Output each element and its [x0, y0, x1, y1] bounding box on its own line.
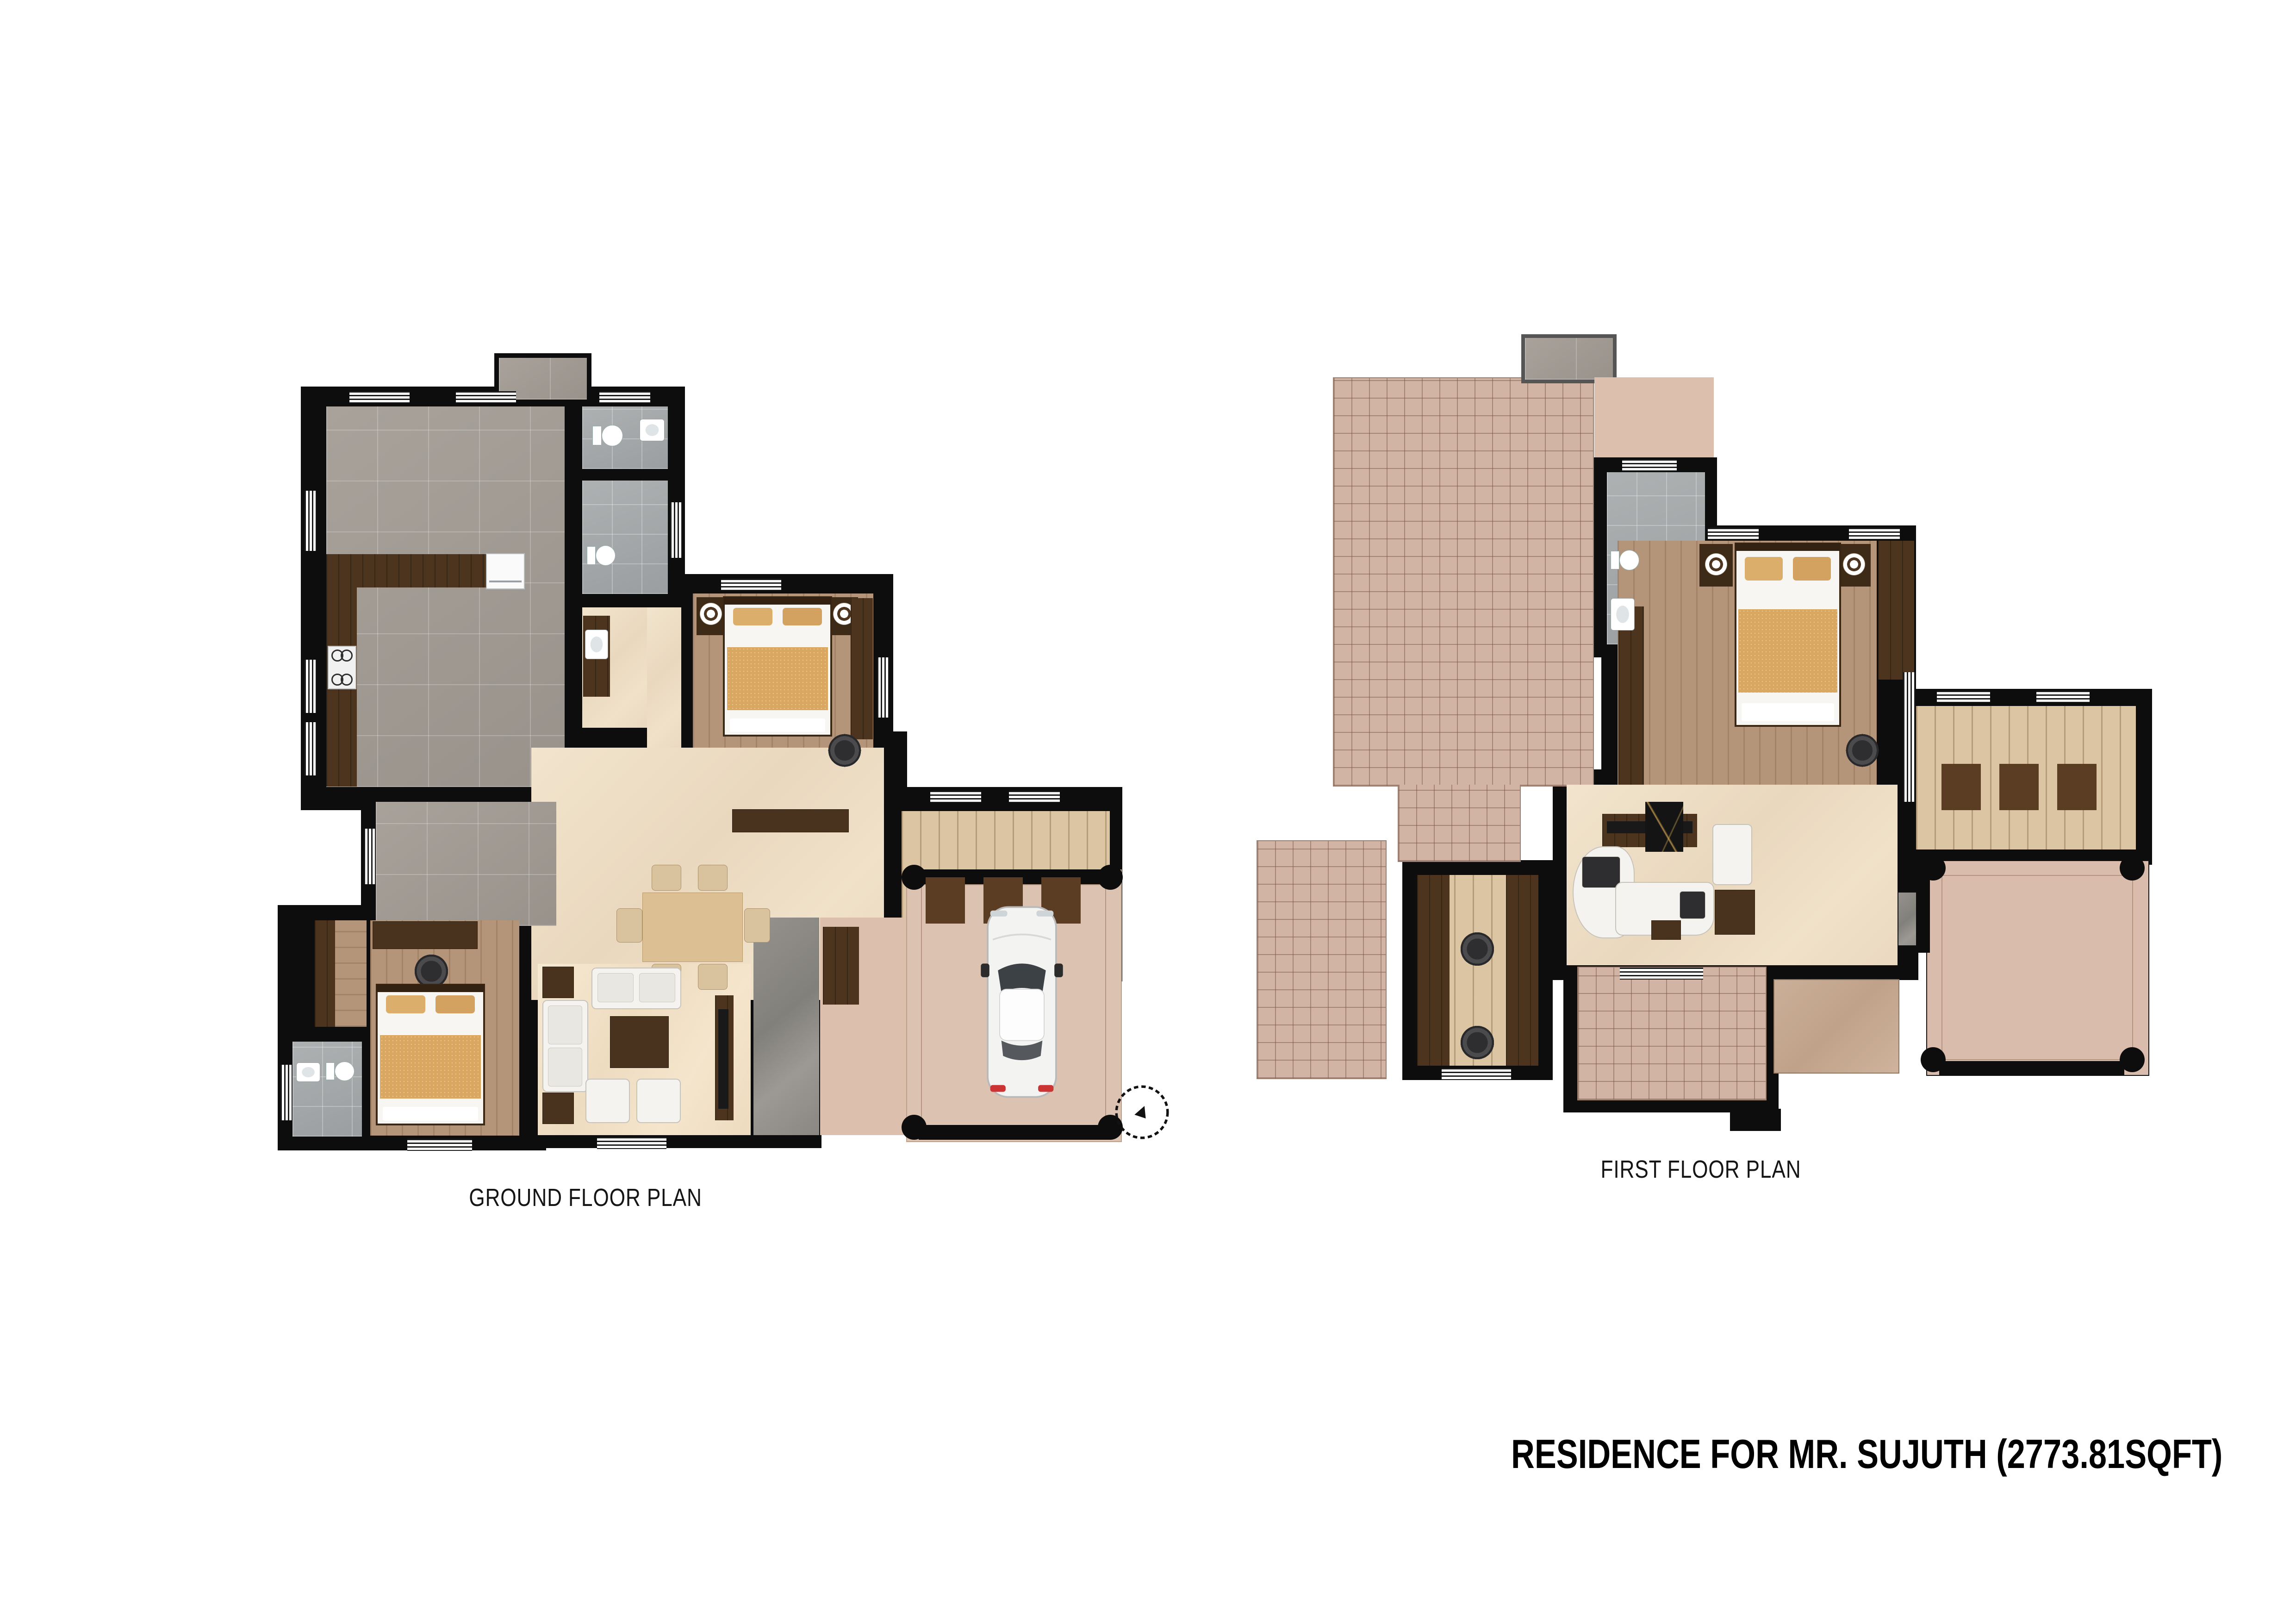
gf-store-floor [376, 802, 556, 926]
first-floor-label: FIRST FLOOR PLAN [1587, 1155, 1815, 1184]
ff-office-chair-2-icon [1459, 1024, 1496, 1061]
ff-window-bedroom-right [1903, 672, 1915, 802]
gf-living-side-table-top [542, 967, 574, 998]
ff-terrace-column-tr [2120, 856, 2145, 881]
ff-tv-marble-panel [1645, 802, 1683, 852]
floor-plan-sheet: GROUND FLOOR PLAN FIRST FLOOR PLAN RESID… [0, 0, 2296, 1624]
gf-sofa-3seat-icon [591, 968, 681, 1009]
gf-dining-chair-6 [744, 908, 770, 943]
gf-kitchen-work-floor [326, 406, 565, 787]
gf-bedroom1-wardrobe-icon [851, 598, 873, 739]
gf-entry-path [753, 918, 819, 1135]
gf-bedroom1-lamp-left-icon [700, 603, 722, 625]
gf-porch-beam-bottom [919, 1125, 1111, 1140]
gf-entry-bench [823, 927, 859, 1005]
gf-bath2-toilet-icon [326, 1060, 355, 1081]
ff-bedroom-bed-icon [1735, 543, 1841, 727]
ff-terrace-column-br [2120, 1047, 2145, 1072]
gf-window-top-1 [349, 391, 410, 403]
ff-terrace-step [1730, 1109, 1781, 1131]
gf-shower-floor [582, 481, 668, 594]
gf-window-bedroom1-top [721, 579, 781, 591]
ff-terrace-column-bl [1921, 1047, 1946, 1072]
gf-corridor-floor [647, 607, 681, 751]
ff-lounge-chair-icon [1712, 824, 1752, 885]
ff-bedroom-lamp-left-icon [1705, 553, 1727, 575]
ff-office-chair-1-icon [1459, 931, 1496, 968]
gf-dining-chair-4 [698, 964, 728, 990]
gf-window-bath1 [599, 391, 650, 403]
gf-dining-chair-2 [698, 865, 728, 891]
gf-tree-icon [1111, 1081, 1173, 1143]
ff-window-stair-2 [2036, 691, 2090, 703]
ff-window-office-bottom [1442, 1068, 1511, 1080]
gf-window-bedroom1-right [877, 657, 889, 718]
gf-window-top-2 [456, 391, 516, 403]
gf-fridge-icon [486, 553, 525, 589]
gf-bath2-sink-icon [296, 1062, 320, 1082]
ff-stair-landing-sq2 [1999, 764, 2039, 810]
ff-bedroom-lamp-right-icon [1843, 553, 1865, 575]
gf-stair-landing-sq1 [926, 877, 965, 924]
gf-dining-table-icon [642, 893, 743, 962]
gf-car-icon [977, 904, 1066, 1100]
gf-vanity-sink-icon [585, 630, 608, 659]
gf-window-bath2-left [280, 1065, 292, 1120]
ff-terrace-bottom-floor [1577, 967, 1767, 1100]
gf-dining-chair-5 [616, 908, 642, 943]
gf-bath1-toilet-icon [592, 424, 623, 447]
ff-roof-main [1333, 377, 1594, 787]
gf-window-bathright [670, 502, 682, 558]
ff-window-stair-1 [1937, 691, 1990, 703]
gf-bedroom1-bed-icon [723, 596, 832, 737]
ff-office-desk-right [1506, 875, 1538, 1066]
ff-hall-coffee-table [1651, 920, 1681, 940]
ff-flat-roof [1594, 377, 1714, 457]
gf-porch-column-tl [902, 865, 927, 890]
gf-window-store-left [364, 829, 376, 884]
gf-bath1-sink-icon [640, 419, 665, 441]
gf-hall-console [732, 809, 849, 832]
gf-window-stair-1 [930, 791, 981, 803]
ff-roof-notch [1398, 785, 1521, 862]
gf-coffee-table-icon [610, 1016, 669, 1068]
gf-window-left-2 [305, 660, 317, 713]
ff-bath-toilet-icon [1611, 549, 1639, 571]
ff-hall-side-table [1715, 890, 1755, 935]
ff-window-hall-bottom [1620, 968, 1703, 980]
ff-window-bedroom-top-2 [1849, 528, 1900, 540]
ff-office-desk-left [1417, 875, 1450, 1066]
gf-tv-icon [718, 1009, 728, 1109]
gf-living-side-table-bottom [542, 1093, 574, 1124]
gf-bedroom2-bed-icon [376, 984, 485, 1125]
gf-sofa-L-icon [542, 1000, 588, 1092]
ff-open-terrace-innerline [1941, 875, 2133, 1060]
gf-stove-icon [328, 646, 356, 689]
ff-terrace-beam-bottom [1939, 1061, 2124, 1075]
gf-porch-column-tr [1098, 865, 1123, 890]
ff-stair-landing-sq3 [2057, 764, 2097, 810]
ff-utility-protrusion [1521, 334, 1617, 383]
ff-corridor-wardrobe-icon [1618, 606, 1644, 814]
gf-bedroom2-desk [373, 921, 478, 949]
ff-window-bath-top [1622, 459, 1677, 471]
gf-armchair-2-icon [636, 1079, 681, 1123]
sheet-title: RESIDENCE FOR MR. SUJUTH (2773.81SQFT) [1511, 1430, 2066, 1478]
ground-floor-label: GROUND FLOOR PLAN [464, 1183, 707, 1212]
gf-kitchen-counter-top [326, 554, 486, 587]
ff-suede-terrace [1773, 979, 1899, 1074]
gf-shower-toilet-icon [587, 544, 616, 566]
gf-window-stair-2 [1009, 791, 1060, 803]
gf-porch-column-bl [902, 1115, 927, 1140]
gf-window-living-bottom [597, 1137, 666, 1149]
gf-bath2-floor [292, 1042, 362, 1137]
gf-dining-chair-1 [652, 865, 681, 891]
ff-bedroom-wardrobe-icon [1878, 541, 1914, 680]
ff-stair-landing-sq1 [1941, 764, 1981, 810]
ff-terrace-left [1257, 840, 1387, 1079]
gf-window-left-1 [305, 491, 317, 551]
ff-window-bedroom-top-1 [1708, 528, 1759, 540]
gf-bedroom1-office-chair-icon [827, 732, 863, 768]
ff-bedroom-office-chair-icon [1844, 732, 1880, 768]
ff-terrace-column-tl [1921, 856, 1946, 881]
gf-window-bedroom2-bottom [407, 1139, 472, 1151]
gf-dressing-wardrobe [315, 920, 335, 1027]
ff-bath-sink-icon [1611, 598, 1635, 631]
gf-armchair-1-icon [585, 1079, 630, 1123]
gf-window-left-3 [305, 722, 317, 775]
